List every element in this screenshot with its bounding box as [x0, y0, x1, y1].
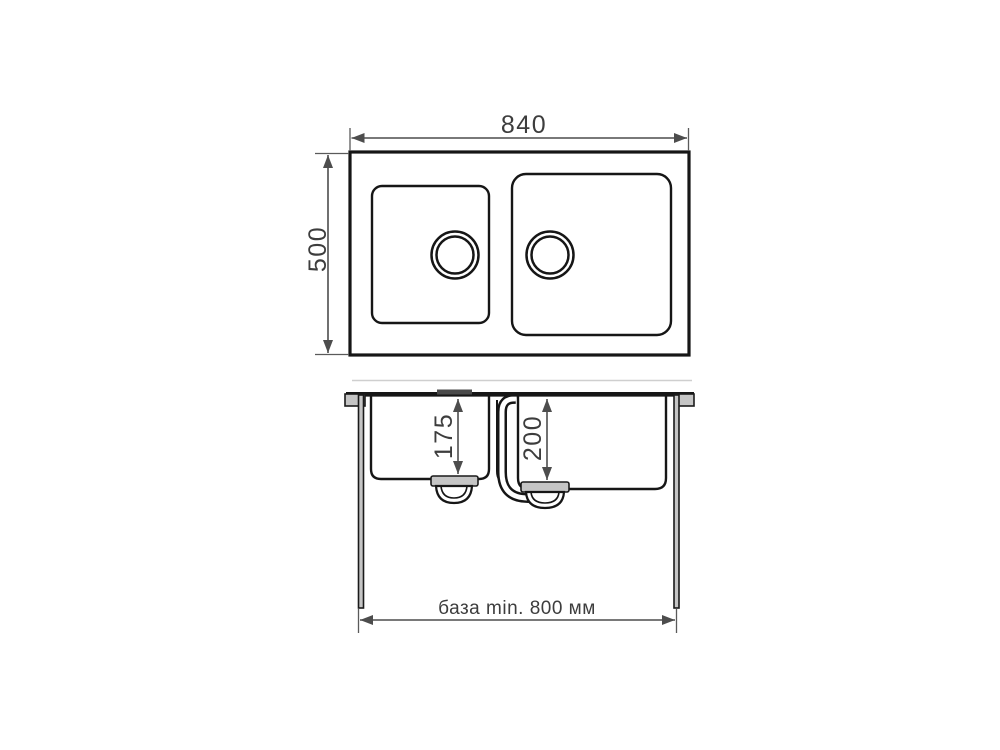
- cabinet-left-wall: [359, 395, 364, 608]
- width-dimension-label: 840: [501, 111, 547, 139]
- dimension-base-800: база min. 800 мм: [359, 598, 677, 633]
- top-view-outer-rect: [350, 152, 689, 355]
- top-view-right-bowl: [512, 174, 671, 335]
- section-right-drain: [521, 482, 569, 508]
- right-depth-dimension-label: 200: [519, 415, 547, 461]
- sink-top-view: [350, 152, 689, 355]
- drawing-svg: 840 500: [0, 0, 1000, 750]
- section-left-drain: [431, 476, 478, 503]
- left-drain-outer-circle: [432, 232, 479, 279]
- sink-technical-drawing: 840 500: [0, 0, 1000, 750]
- left-drain-inner-circle: [437, 237, 474, 274]
- height-dimension-label: 500: [304, 226, 332, 272]
- base-dimension-label: база min. 800 мм: [438, 598, 596, 619]
- left-depth-dimension-label: 175: [430, 413, 458, 459]
- cabinet-right-wall: [674, 395, 679, 608]
- dimension-width-840: 840: [350, 111, 689, 151]
- sink-section-view: 175 200 база min. 800 мм: [345, 381, 694, 634]
- right-drain-inner-circle: [532, 237, 569, 274]
- dimension-height-500: 500: [304, 154, 349, 355]
- rim-dark-segment: [437, 390, 472, 395]
- right-drain-outer-circle: [527, 232, 574, 279]
